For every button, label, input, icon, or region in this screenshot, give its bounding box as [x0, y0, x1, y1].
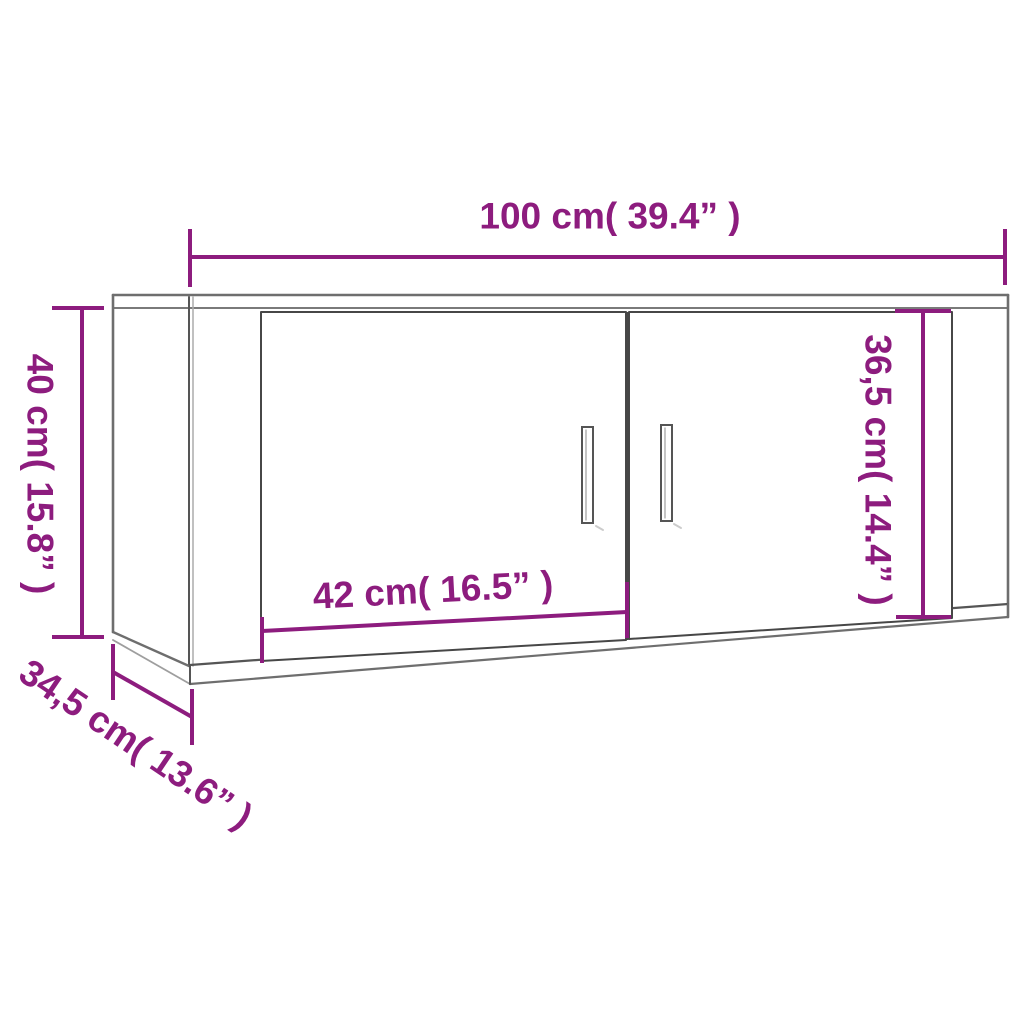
door-height-dimension-label: 36,5 cm( 14.4” )	[860, 334, 897, 605]
right-door	[629, 312, 952, 639]
width-dimension	[190, 229, 1005, 287]
left-door-handle	[582, 427, 593, 523]
width-dimension-label: 100 cm( 39.4” )	[479, 198, 740, 235]
height-dimension-label: 40 cm( 15.8” )	[22, 354, 59, 595]
dimension-diagram: 100 cm( 39.4” ) 40 cm( 15.8” ) 36,5 cm( …	[0, 0, 1024, 1024]
right-door-handle	[661, 425, 672, 521]
